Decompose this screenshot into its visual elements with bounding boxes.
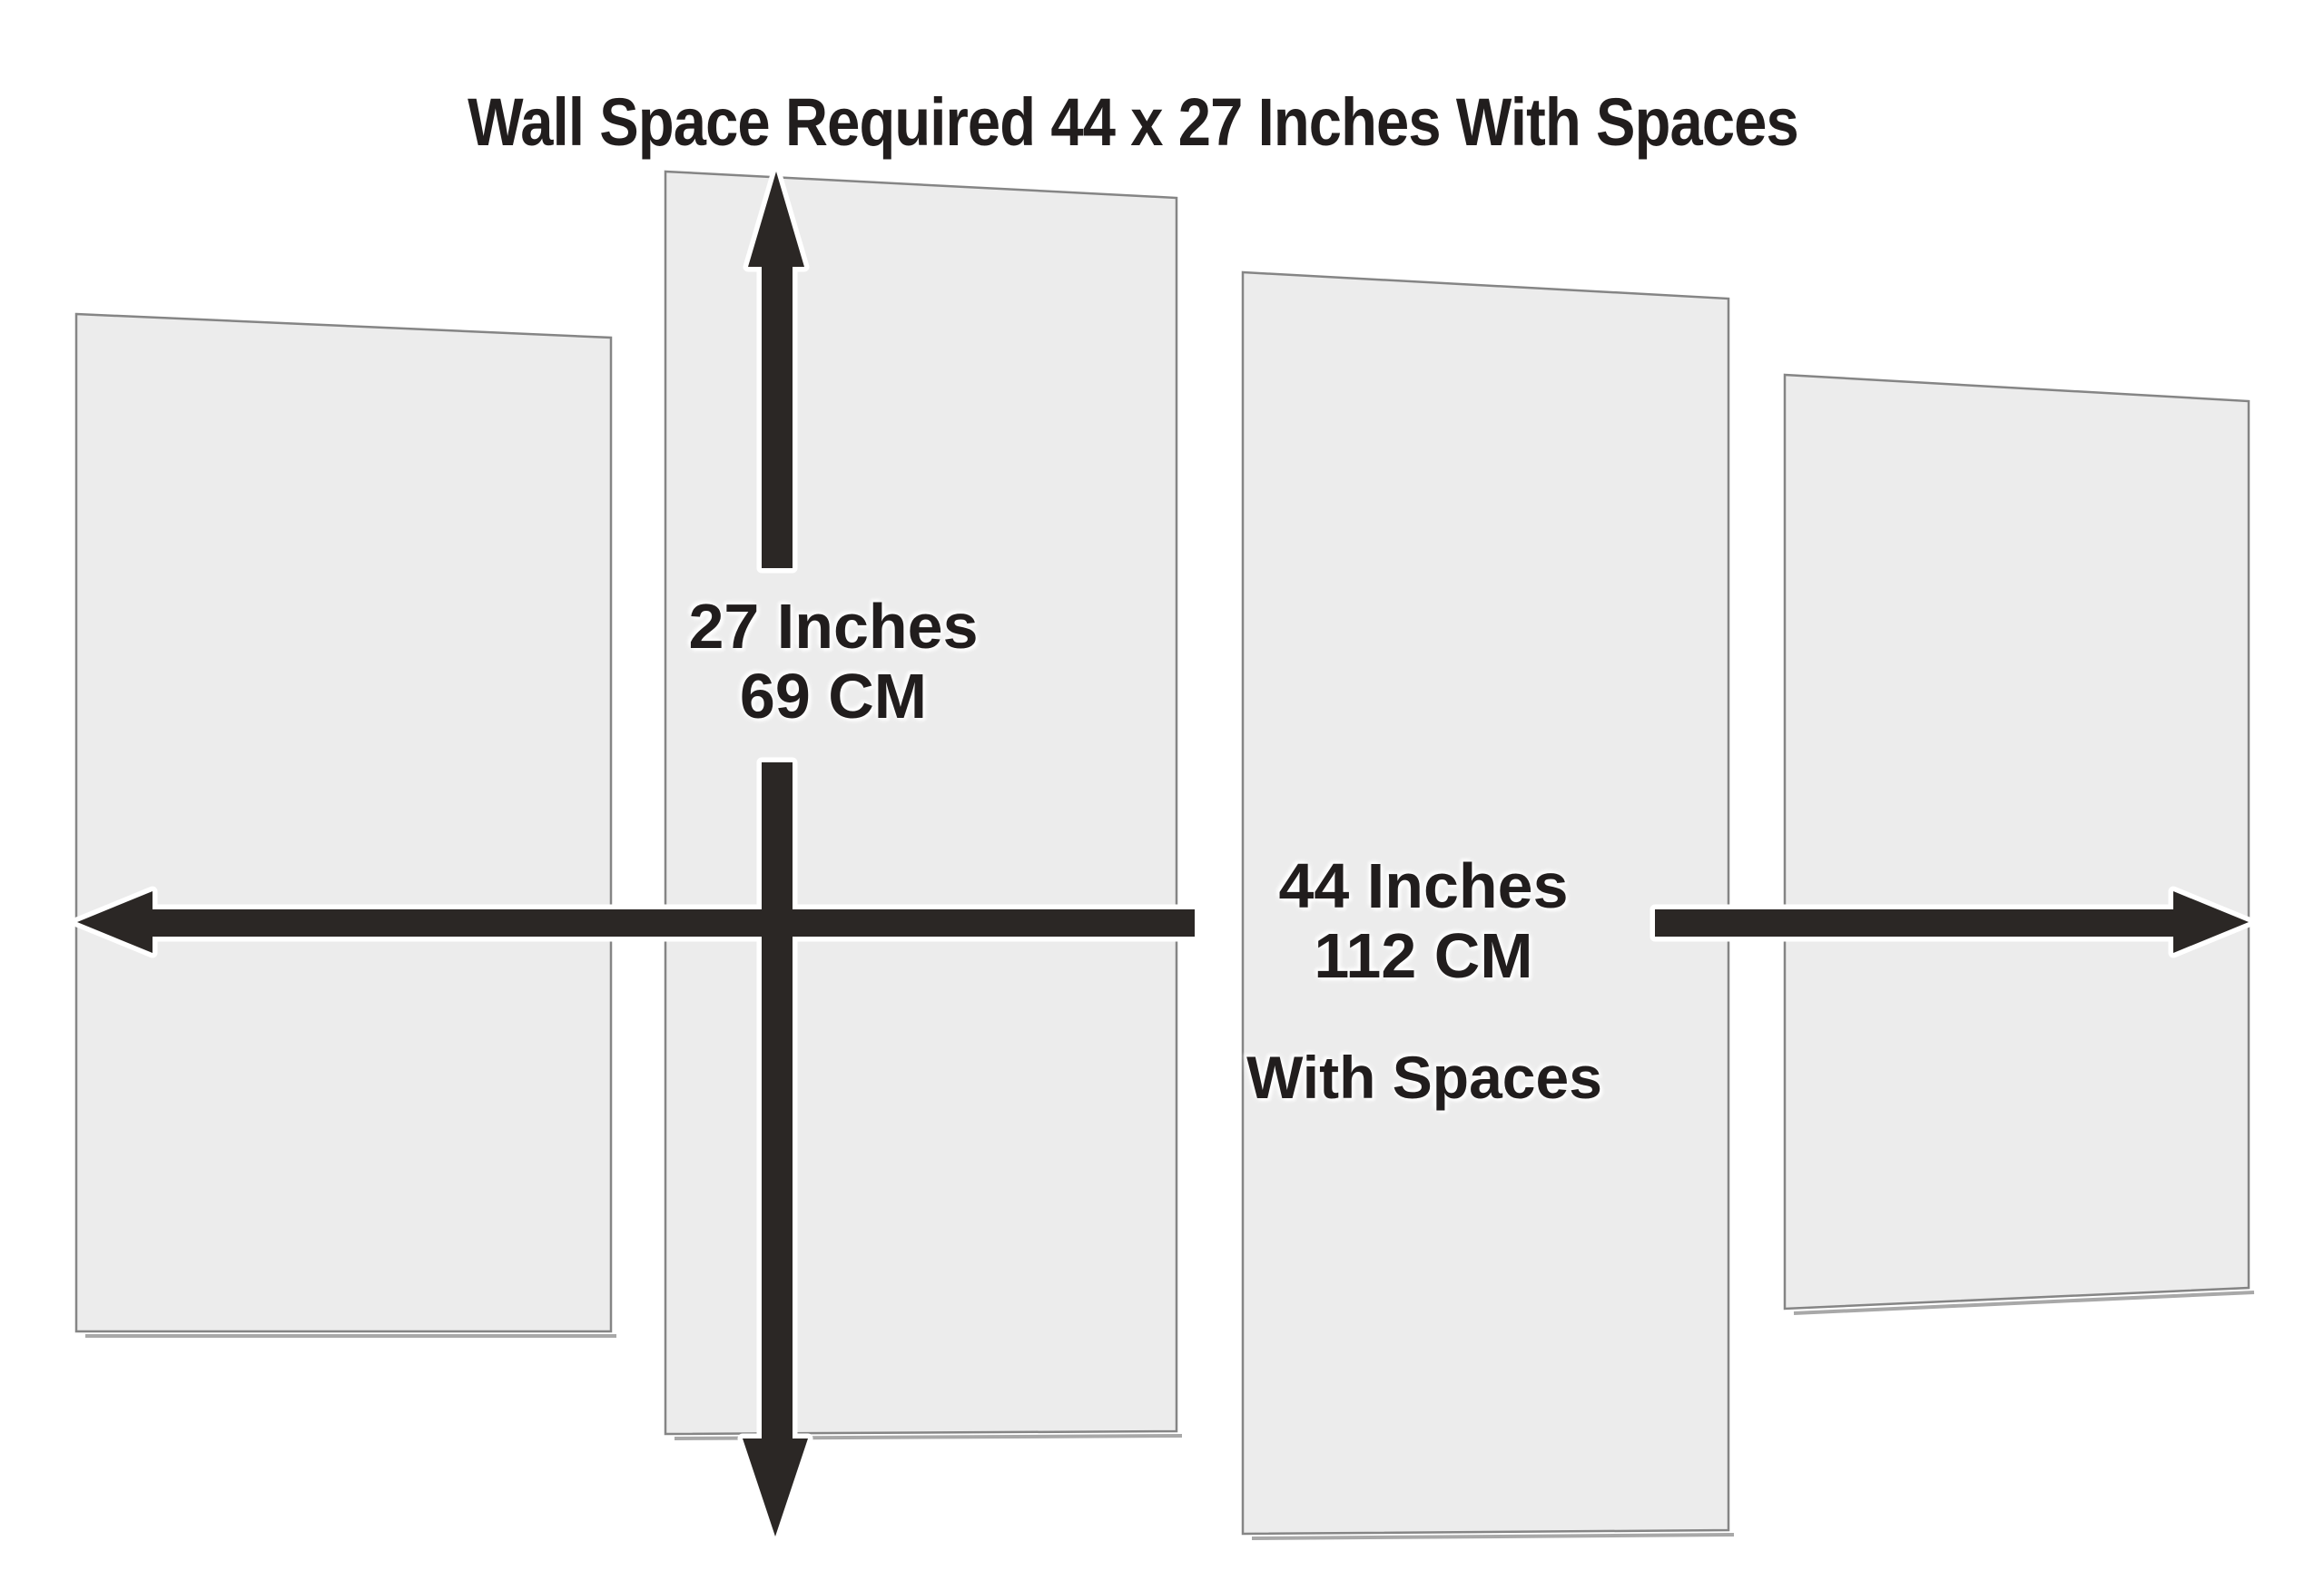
height-dimension-label: 27 Inches 69 CM — [688, 592, 978, 731]
panels-and-arrows-svg — [0, 0, 2324, 1571]
canvas-panel-4 — [1785, 375, 2249, 1309]
height-dimension-inches: 27 Inches — [688, 592, 978, 662]
canvas-panel-2 — [665, 172, 1177, 1434]
with-spaces-note: With Spaces — [1246, 1046, 1602, 1109]
height-dimension-cm: 69 CM — [688, 662, 978, 731]
horizontal-arrow-left-shaft — [145, 909, 1195, 937]
vertical-arrow-top-shaft — [762, 260, 793, 568]
width-dimension-inches: 44 Inches — [1278, 851, 1568, 921]
panel-3-shadow — [1252, 1535, 1734, 1538]
diagram-title: Wall Space Required 44 x 27 Inches With … — [468, 83, 1798, 161]
canvas-panel-1 — [76, 314, 611, 1331]
canvas-panels — [76, 172, 2254, 1538]
vertical-arrow-main-shaft — [762, 762, 793, 1439]
width-dimension-label: 44 Inches 112 CM — [1278, 851, 1568, 991]
vertical-arrow-bottom-head — [743, 1438, 808, 1537]
horizontal-arrow-right-shaft — [1655, 909, 2177, 937]
width-dimension-cm: 112 CM — [1278, 921, 1568, 991]
wall-art-dimension-diagram: Wall Space Required 44 x 27 Inches With … — [0, 0, 2324, 1571]
